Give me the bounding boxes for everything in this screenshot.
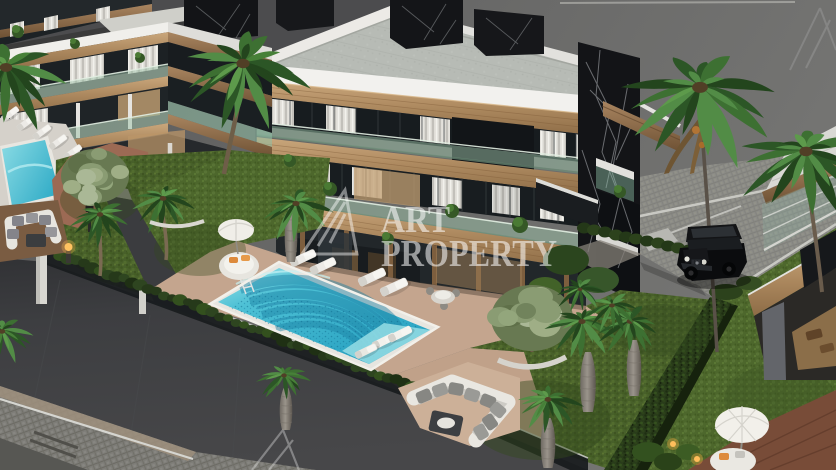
svg-text:PROPERTY: PROPERTY xyxy=(381,233,557,275)
